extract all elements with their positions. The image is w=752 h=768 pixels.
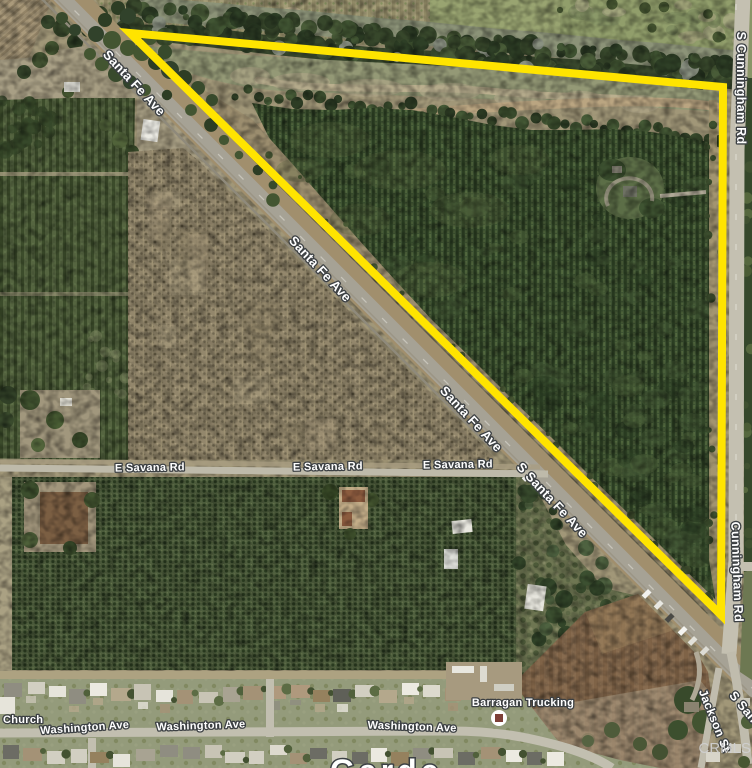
svg-text:CRMLS: CRMLS [698, 740, 751, 757]
svg-text:Church: Church [3, 714, 43, 726]
svg-text:S Cunningham Rd: S Cunningham Rd [734, 32, 748, 145]
svg-text:E Savana Rd: E Savana Rd [423, 458, 493, 471]
svg-text:E Savana Rd: E Savana Rd [115, 461, 185, 474]
svg-text:Garde: Garde [330, 753, 442, 768]
svg-text:Barragan Trucking: Barragan Trucking [472, 697, 574, 709]
svg-text:E Savana Rd: E Savana Rd [293, 460, 363, 473]
